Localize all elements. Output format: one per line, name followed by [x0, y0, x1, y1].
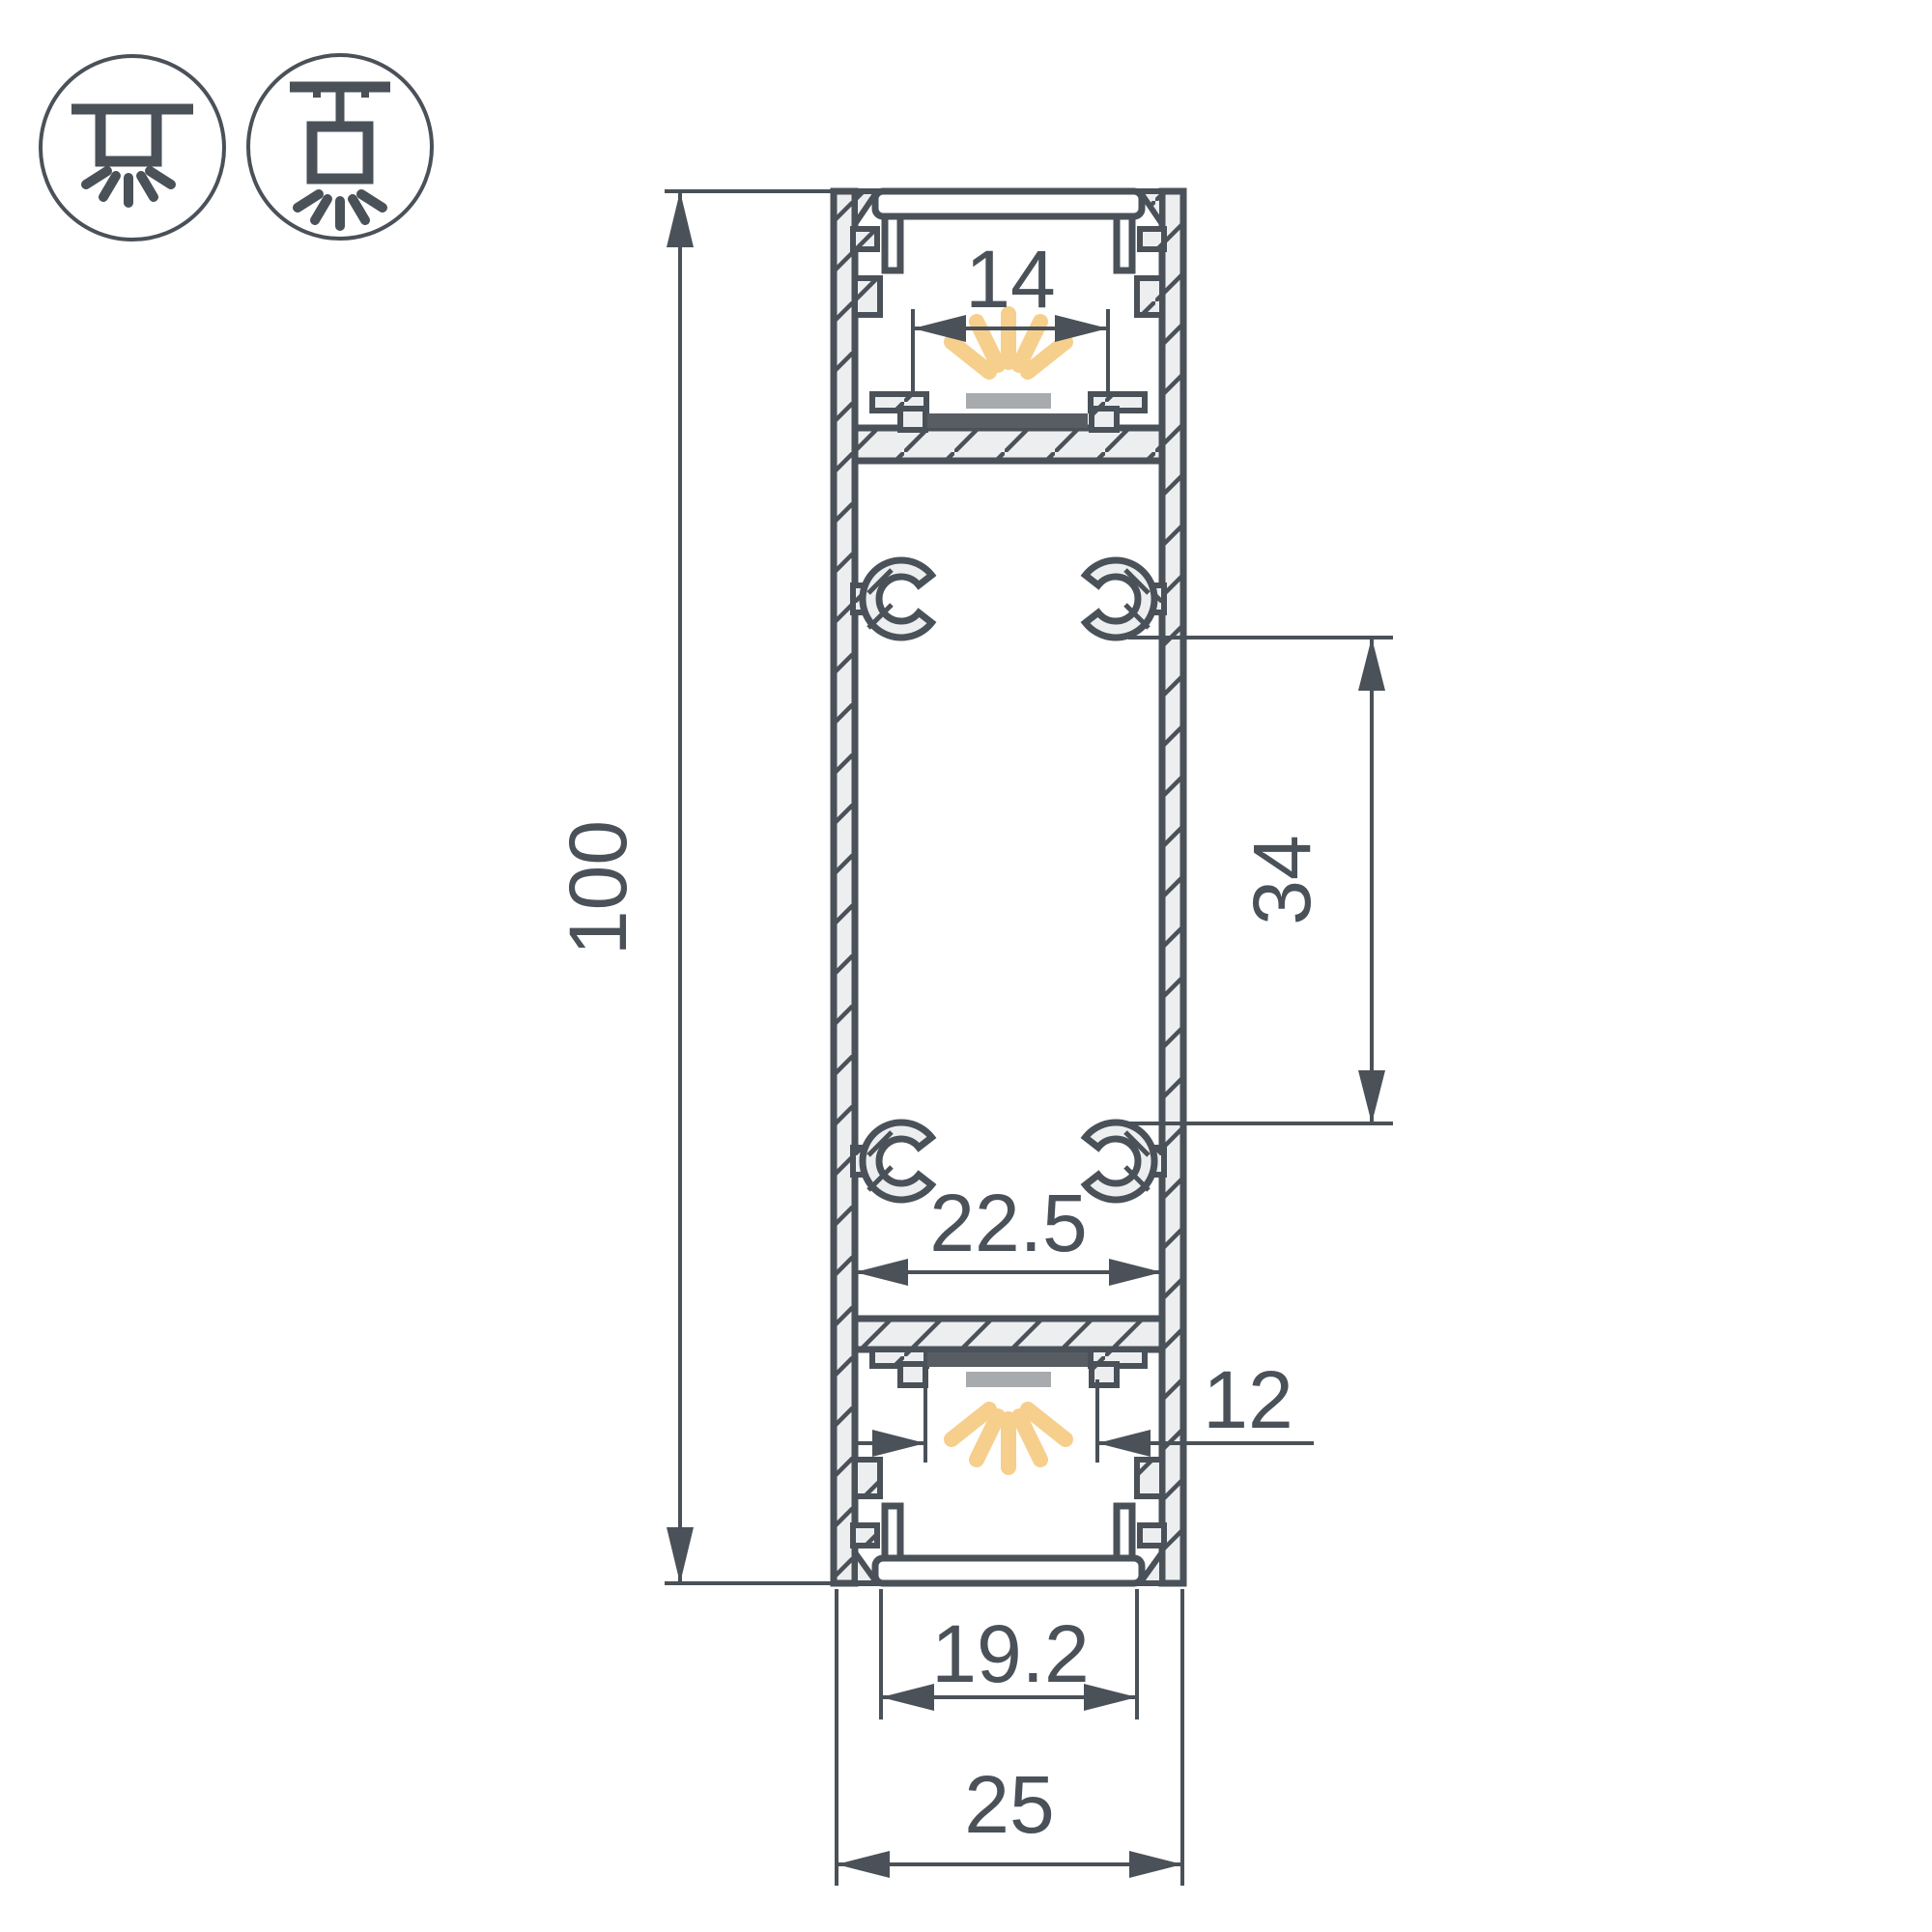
pendant-mount-icon	[248, 55, 432, 239]
surface-mount-icon	[41, 56, 224, 240]
light-rays-icon	[298, 194, 383, 226]
led-strip-bottom	[927, 1352, 1088, 1467]
led-emitter-bar	[966, 393, 1051, 409]
bottom-diffuser-cover	[875, 1506, 1142, 1583]
inner-width-label: 22.5	[929, 1178, 1088, 1268]
screw-boss-lower-left	[853, 1122, 932, 1200]
dimension-overall-height: 100	[553, 191, 833, 1583]
led-shelf-tick	[900, 409, 925, 430]
dimension-bottom-opening: 19.2	[881, 1589, 1137, 1719]
bottom-opening-label: 19.2	[931, 1608, 1090, 1699]
led-shelf-tick	[1092, 1364, 1117, 1385]
surface-mount-icon-circle	[41, 56, 224, 240]
cover-hook	[885, 1506, 900, 1560]
cover-groove-tab	[853, 1525, 877, 1546]
mounting-icons	[41, 55, 432, 240]
luminaire-box-icon	[312, 127, 368, 179]
lower-partition	[855, 1319, 1162, 1350]
screw-boss-upper-left	[853, 560, 932, 638]
cover-hook	[1117, 1506, 1132, 1560]
cover-plate	[875, 1558, 1142, 1583]
led-pcb-bar	[927, 413, 1088, 428]
cover-hook	[1117, 216, 1132, 270]
led-emitter-bar	[966, 1372, 1051, 1387]
cover-plate	[875, 191, 1142, 216]
left-wall	[834, 191, 855, 1583]
technical-drawing-canvas: 100 14 34 22.5	[0, 0, 1932, 1932]
led-shelf-tick	[1092, 409, 1117, 430]
led-shelf-tick	[900, 1364, 925, 1385]
cover-hook	[885, 216, 900, 270]
profile-drawing-page: 100 14 34 22.5	[0, 0, 1932, 1932]
led-pcb-bar	[927, 1352, 1088, 1367]
overall-height-label: 100	[553, 820, 643, 955]
right-wall	[1162, 191, 1183, 1583]
cover-groove-tab	[1140, 229, 1164, 249]
profile-cross-section	[834, 191, 1183, 1583]
cover-groove-tab	[1140, 1525, 1164, 1546]
cover-groove-tab	[853, 229, 877, 249]
screw-boss-upper-right	[1086, 560, 1165, 638]
light-rays-icon	[86, 171, 171, 203]
overall-width-label: 25	[964, 1759, 1054, 1850]
wall-step	[855, 1460, 880, 1496]
luminaire-box-icon	[100, 109, 156, 161]
wall-step	[855, 278, 880, 315]
top-window-label: 14	[965, 234, 1055, 325]
upper-partition	[855, 428, 1162, 461]
led-rays-down	[952, 1409, 1065, 1467]
bottom-window-label: 12	[1203, 1354, 1293, 1445]
wall-step	[1137, 1460, 1162, 1496]
boss-spacing-label: 34	[1236, 835, 1327, 924]
screw-boss-lower-right	[1086, 1122, 1165, 1200]
screw-bosses	[853, 560, 1164, 1200]
wall-step	[1137, 278, 1162, 315]
